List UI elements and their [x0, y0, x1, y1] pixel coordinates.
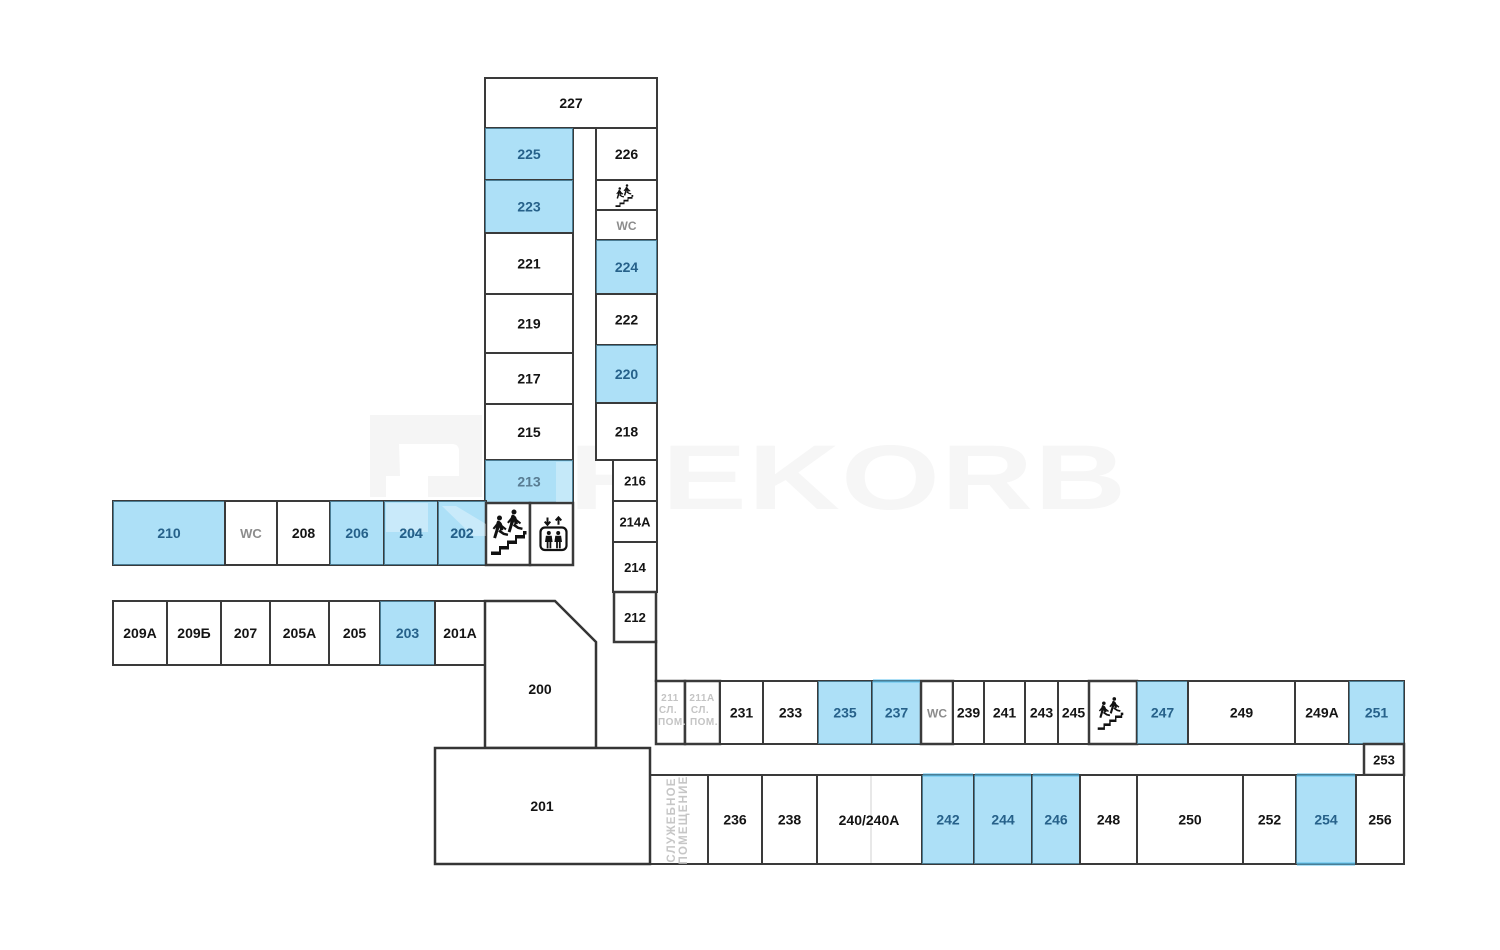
svg-text:235: 235 — [833, 705, 857, 721]
svg-text:216: 216 — [624, 474, 646, 489]
svg-text:231: 231 — [730, 705, 754, 721]
svg-text:251: 251 — [1365, 705, 1389, 721]
svg-text:249: 249 — [1230, 705, 1254, 721]
svg-text:249A: 249A — [1305, 705, 1338, 721]
svg-text:203: 203 — [396, 625, 420, 641]
svg-text:208: 208 — [292, 525, 316, 541]
svg-text:223: 223 — [517, 199, 541, 215]
svg-text:222: 222 — [615, 312, 639, 328]
svg-text:252: 252 — [1258, 812, 1282, 828]
svg-text:239: 239 — [957, 705, 981, 721]
svg-text:211: 211 — [661, 693, 679, 704]
svg-text:201A: 201A — [443, 625, 476, 641]
svg-text:207: 207 — [234, 625, 258, 641]
svg-text:217: 217 — [517, 371, 541, 387]
svg-text:206: 206 — [345, 525, 369, 541]
svg-text:253: 253 — [1373, 753, 1395, 768]
svg-text:200: 200 — [528, 681, 552, 697]
svg-text:204: 204 — [399, 525, 423, 541]
svg-text:211А: 211А — [689, 693, 714, 704]
svg-text:244: 244 — [991, 812, 1015, 828]
svg-text:201: 201 — [530, 798, 554, 814]
svg-text:225: 225 — [517, 146, 541, 162]
svg-text:202: 202 — [450, 525, 474, 541]
svg-text:241: 241 — [993, 705, 1017, 721]
svg-text:227: 227 — [559, 95, 583, 111]
svg-text:205: 205 — [343, 625, 367, 641]
svg-text:ПОМЕЩЕНИЕ: ПОМЕЩЕНИЕ — [678, 776, 690, 865]
svg-text:WC: WC — [927, 707, 947, 721]
svg-text:226: 226 — [615, 146, 639, 162]
svg-text:221: 221 — [517, 256, 541, 272]
svg-text:WC: WC — [617, 219, 637, 233]
svg-text:218: 218 — [615, 424, 639, 440]
svg-text:243: 243 — [1030, 705, 1054, 721]
svg-text:250: 250 — [1178, 812, 1202, 828]
svg-text:209Б: 209Б — [177, 625, 210, 641]
svg-text:215: 215 — [517, 424, 541, 440]
svg-text:210: 210 — [157, 525, 181, 541]
svg-text:237: 237 — [885, 705, 909, 721]
svg-text:242: 242 — [936, 812, 960, 828]
svg-text:СЛ.: СЛ. — [691, 705, 709, 716]
svg-text:209A: 209A — [123, 625, 156, 641]
svg-text:ПОМ.: ПОМ. — [690, 717, 718, 728]
svg-text:224: 224 — [615, 259, 639, 275]
svg-text:240/240A: 240/240A — [839, 812, 900, 828]
svg-text:238: 238 — [778, 812, 802, 828]
svg-text:ПОМ.: ПОМ. — [658, 717, 686, 728]
svg-text:СЛ.: СЛ. — [659, 705, 677, 716]
svg-text:214: 214 — [624, 560, 646, 575]
svg-text:212: 212 — [624, 610, 646, 625]
svg-text:219: 219 — [517, 316, 541, 332]
svg-text:СЛУЖЕБНОЕ: СЛУЖЕБНОЕ — [666, 777, 678, 862]
svg-text:WC: WC — [240, 526, 262, 541]
svg-text:247: 247 — [1151, 705, 1175, 721]
svg-text:220: 220 — [615, 366, 639, 382]
svg-text:245: 245 — [1062, 705, 1086, 721]
svg-text:248: 248 — [1097, 812, 1121, 828]
svg-text:214A: 214A — [619, 515, 651, 530]
svg-text:256: 256 — [1368, 812, 1392, 828]
svg-text:236: 236 — [723, 812, 747, 828]
svg-text:233: 233 — [779, 705, 803, 721]
svg-text:254: 254 — [1314, 812, 1338, 828]
svg-text:213: 213 — [517, 474, 541, 490]
svg-text:246: 246 — [1044, 812, 1068, 828]
svg-text:205A: 205A — [283, 625, 316, 641]
